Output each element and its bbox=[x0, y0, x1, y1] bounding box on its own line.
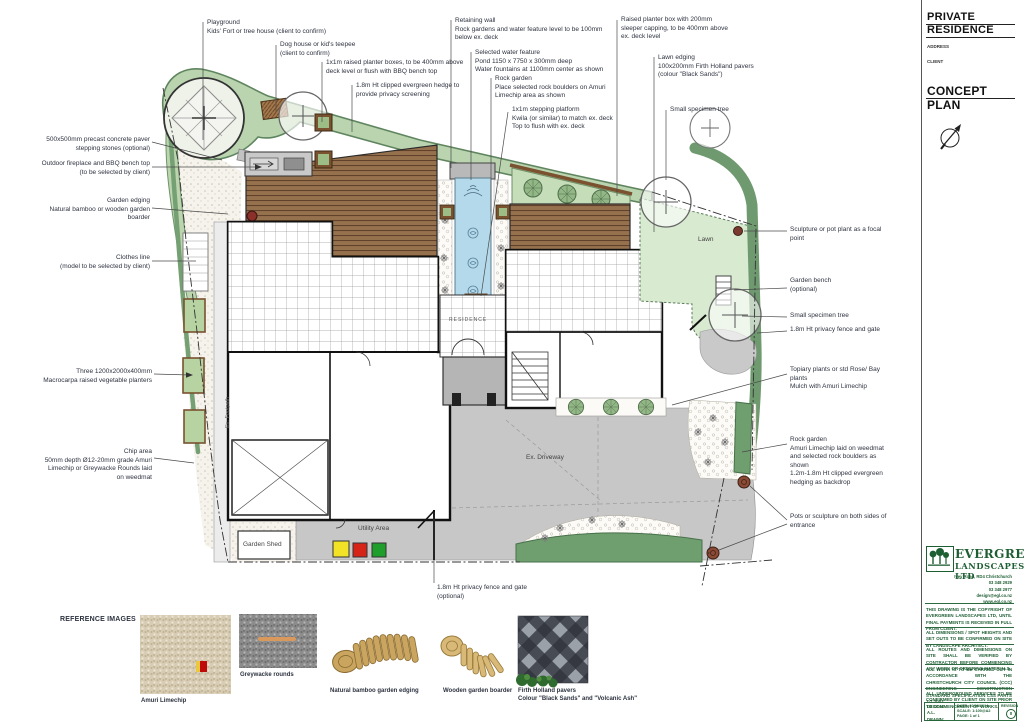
raised-planter-boxes-symbols bbox=[315, 114, 332, 168]
ref-image-wooden-boarder bbox=[441, 636, 504, 677]
annotation-rock-garden-top: Rock garden Place selected rock boulders… bbox=[495, 75, 635, 101]
label-residence: RESIDENCE bbox=[449, 317, 487, 323]
rock-garden-right bbox=[688, 400, 756, 480]
revision-cell: REVISION 0 bbox=[998, 703, 1016, 720]
annotation-stepping-stones: 500x500mm precast concrete paver steppin… bbox=[38, 136, 150, 153]
annotation-small-specimen-tree-right: Small specimen tree bbox=[790, 312, 908, 321]
deck-secondary bbox=[510, 204, 630, 252]
project-title-line1: PRIVATE bbox=[927, 12, 975, 24]
company-name-line1: EVERGREEN bbox=[955, 547, 1024, 561]
annotation-lawn-edging: Lawn edging 100x200mm Firth Holland pave… bbox=[658, 54, 778, 80]
reference-images-heading: REFERENCE IMAGES bbox=[60, 616, 136, 623]
disclaimer-copyright: THIS DRAWING IS THE COPYRIGHT OF EVERGRE… bbox=[926, 607, 1012, 633]
topiary-bed bbox=[556, 398, 666, 416]
annotation-dog-house: Dog house or kid's teepee (client to con… bbox=[280, 41, 390, 58]
title-block: PRIVATE RESIDENCE ADDRESS CLIENT CONCEPT… bbox=[921, 0, 1017, 722]
annotation-privacy-fence-right: 1.8m Ht privacy fence and gate bbox=[790, 326, 912, 335]
annotation-clothes-line: Clothes line (model to be selected by cl… bbox=[38, 254, 150, 271]
project-title-line2: RESIDENCE bbox=[927, 25, 994, 37]
residence-right-building bbox=[506, 250, 662, 408]
annotation-retaining-wall: Retaining wall Rock gardens and water fe… bbox=[455, 17, 630, 43]
annotation-small-specimen-tree-top: Small specimen tree bbox=[670, 106, 770, 115]
annotation-garden-edging: Garden edging Natural bamboo or wooden g… bbox=[38, 197, 150, 223]
caption-greywacke-rounds: Greywacke rounds bbox=[240, 671, 294, 679]
entry-court bbox=[440, 295, 508, 406]
annotation-chip-area: Chip area 50mm depth Ø12-20mm grade Amur… bbox=[40, 448, 152, 482]
residence-left-building bbox=[228, 222, 450, 528]
sculpture-symbol bbox=[734, 227, 743, 236]
evergreen-logo-icon bbox=[926, 546, 954, 572]
annotation-vege-planters: Three 1200x2000x400mm Macrocarpa raised … bbox=[40, 368, 152, 385]
ref-image-firth-holland-pavers bbox=[516, 616, 588, 688]
annotation-raised-planter-boxes: 1x1m raised planter boxes, to be 400mm a… bbox=[326, 59, 491, 76]
bbq-bench-symbol bbox=[245, 152, 312, 176]
revision-value: 0 bbox=[1006, 709, 1016, 719]
caption-wooden-boarder: Wooden garden boarder bbox=[443, 687, 512, 695]
annotation-playground: Playground Kids' Fort or tree house (cli… bbox=[207, 19, 372, 36]
ref-image-amuri-limechip bbox=[140, 615, 231, 694]
playground-area bbox=[164, 78, 244, 158]
label-lawn: Lawn bbox=[698, 236, 714, 243]
annotation-topiary-plants: Topiary plants or std Rose/ Bay plants M… bbox=[790, 366, 908, 392]
annotation-privacy-fence-bottom: 1.8m Ht privacy fence and gate (optional… bbox=[437, 584, 552, 601]
fire-pit-symbol bbox=[247, 211, 257, 221]
clothes-line-symbol bbox=[183, 233, 208, 291]
date-scale-page-cell: DATE: 22/06/2014 SCALE: 1:100@A2 PAGE: 1… bbox=[954, 703, 998, 720]
annotation-privacy-hedge: 1.8m Ht clipped evergreen hedge to provi… bbox=[356, 82, 486, 99]
caption-amuri-limechip: Amuri Limechip bbox=[141, 697, 186, 705]
drawing-info-table: DESIGN: A.L. DRAWN: A.L. DATE: 22/06/201… bbox=[924, 702, 1017, 721]
label-driveway: Ex. Driveway bbox=[526, 454, 564, 461]
ref-image-bamboo-edging bbox=[329, 629, 418, 676]
annotation-raised-planter-box-sleeper: Raised planter box with 200mm sleeper ca… bbox=[621, 16, 746, 42]
annotation-garden-bench: Garden bench (optional) bbox=[790, 277, 908, 294]
company-contact: Ivey Road, RD4 Christchurch 03 348 2929 … bbox=[942, 574, 1012, 605]
label-utility-area: Utility Area bbox=[358, 525, 389, 532]
vege-planter-symbols bbox=[183, 299, 205, 443]
annotation-stepping-platform: 1x1m stepping platform Kwila (or similar… bbox=[512, 106, 647, 132]
annotation-water-feature: Selected water feature Pond 1150 x 7750 … bbox=[475, 49, 635, 75]
annotation-bbq-bench: Outdoor fireplace and BBQ bench top (to … bbox=[38, 160, 150, 177]
client-label: CLIENT bbox=[927, 59, 943, 64]
annotation-sculpture-focal: Sculpture or pot plant as a focal point bbox=[790, 226, 908, 243]
annotation-rock-garden-right: Rock garden Amuri Limechip laid on weedm… bbox=[790, 436, 908, 487]
caption-bamboo-edging: Natural bamboo garden edging bbox=[330, 687, 419, 695]
label-garden-shed: Garden Shed bbox=[243, 541, 282, 548]
concept-plan-sheet: Playground Kids' Fort or tree house (cli… bbox=[0, 0, 1024, 722]
annotation-entrance-pots: Pots or sculpture on both sides of entra… bbox=[790, 513, 910, 530]
label-ex-footpath: Ex. Footpath bbox=[225, 397, 231, 428]
bin-symbols bbox=[333, 541, 386, 557]
ref-image-greywacke-rounds bbox=[239, 614, 317, 668]
address-label: ADDRESS bbox=[927, 44, 949, 49]
design-drawn-cell: DESIGN: A.L. DRAWN: A.L. bbox=[925, 703, 954, 720]
caption-firth-holland-pavers: Firth Holland pavers Colour "Black Sands… bbox=[518, 687, 637, 703]
specimen-tree-right bbox=[709, 289, 761, 341]
